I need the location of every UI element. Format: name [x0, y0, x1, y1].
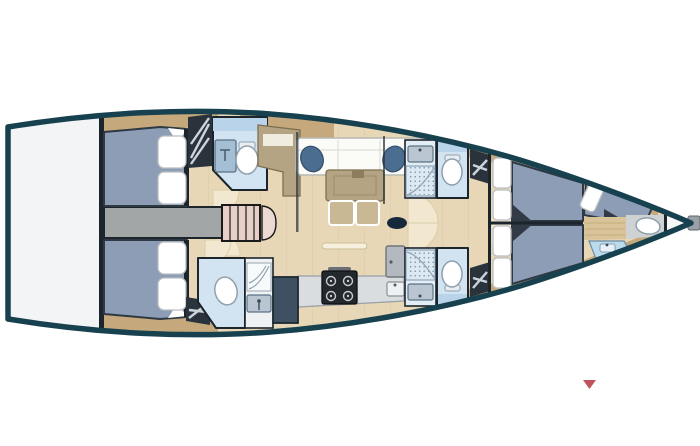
deck-hatch-fwd-starboard — [470, 262, 490, 297]
toilet — [442, 261, 462, 287]
hanging-locker-navy — [273, 277, 298, 323]
salon-aft-wall — [296, 132, 299, 232]
yacht-floor-plan — [0, 0, 700, 446]
pillow — [158, 136, 186, 168]
floor-hatch — [322, 243, 367, 249]
engine-corridor — [104, 207, 222, 238]
shower-grate — [407, 251, 434, 279]
stern-platform — [8, 118, 101, 332]
pillow — [493, 190, 511, 220]
pillow — [493, 226, 511, 256]
salon-fwd-wall — [383, 136, 385, 204]
fwd-head-port — [405, 140, 468, 198]
shower-panel — [247, 263, 271, 291]
salon-stool — [356, 201, 379, 225]
red-marker-triangle-icon — [583, 380, 596, 389]
deck-hatch-fwd-port — [470, 149, 490, 184]
vanity-sink — [408, 146, 433, 162]
fridge-handle — [389, 260, 392, 263]
faucet — [394, 284, 397, 287]
vanity-sink — [408, 284, 433, 300]
aft-cabin-port — [104, 127, 189, 206]
toilet — [442, 159, 462, 185]
pillow — [493, 158, 511, 188]
companionway-stairs — [222, 205, 276, 241]
salon-stool — [329, 201, 354, 225]
salon-table-leaf — [352, 170, 364, 178]
deck-hatch-aft-port — [188, 114, 212, 168]
mast-foot — [387, 217, 407, 229]
pillow — [158, 172, 186, 204]
nav-desk-top — [263, 134, 293, 146]
fridge — [386, 246, 405, 277]
faucet — [606, 244, 609, 247]
pillow — [158, 278, 186, 310]
fwd-cabin-centerline — [491, 222, 583, 225]
shower-grate — [407, 167, 434, 195]
fwd-head-starboard — [405, 248, 468, 306]
yacht-floor-plan-canvas — [0, 0, 700, 446]
fwd-cabin-bulkhead — [488, 148, 491, 298]
pillow — [493, 258, 511, 288]
faucet — [419, 295, 422, 298]
aft-cabin-starboard — [104, 240, 189, 319]
faucet — [419, 149, 422, 152]
stove — [322, 267, 357, 304]
pillow — [158, 242, 186, 274]
toilet — [236, 146, 258, 174]
